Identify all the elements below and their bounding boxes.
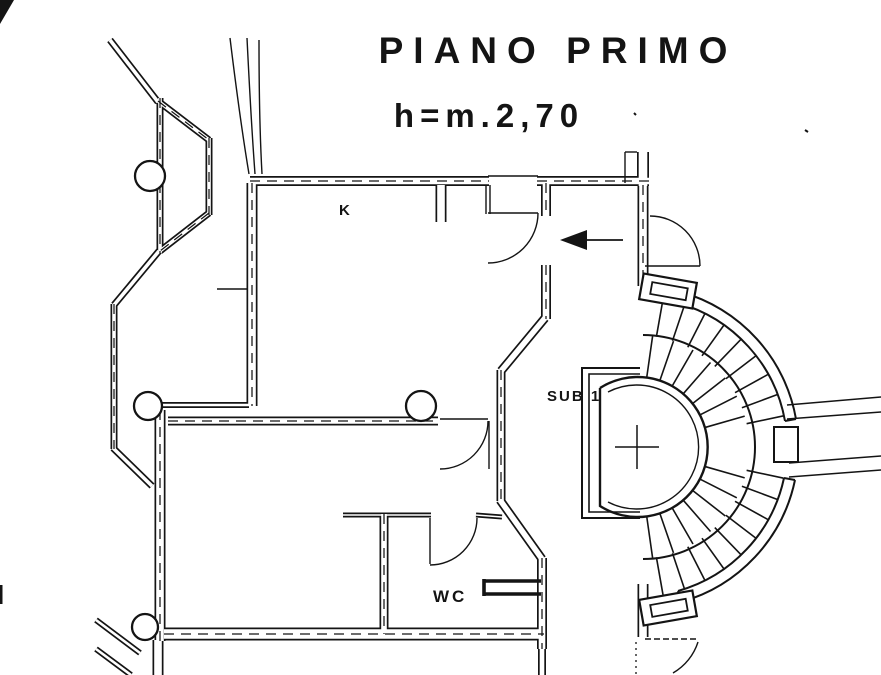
- door-or-detail-line: [430, 518, 477, 565]
- stair-step-line: [683, 500, 711, 532]
- column-circle: [406, 391, 436, 421]
- stair-step-line: [704, 466, 744, 478]
- stair-step-line: [660, 513, 674, 553]
- wall-segment: [114, 251, 159, 305]
- door-or-detail-line: [673, 642, 698, 673]
- stair-step-line: [742, 486, 778, 499]
- walls: [96, 40, 649, 675]
- wall-segment: [500, 500, 542, 559]
- stair-step-line: [647, 516, 653, 558]
- exit-wall-lines: [787, 397, 881, 477]
- stair-step-line: [673, 553, 685, 589]
- stair-step-line: [735, 501, 768, 519]
- room-label-wc: WC: [433, 587, 467, 606]
- floor-plan-drawing: PIANO PRIMO h=m.2,70 K SUB 1 WC: [0, 0, 881, 675]
- stair-step-line: [735, 374, 768, 392]
- stair-step-line: [699, 479, 736, 498]
- stair-step-line: [715, 528, 741, 555]
- entrance-arrow: [560, 230, 623, 250]
- door-or-detail-line: [230, 38, 249, 174]
- stair-step-line: [673, 305, 685, 341]
- stair-step-line: [692, 378, 725, 404]
- spiral-staircase: [582, 274, 798, 626]
- door-or-detail-line: [247, 38, 255, 174]
- stair-step-line: [656, 557, 663, 594]
- stair-step-line: [660, 341, 674, 381]
- stair-wall-notch: [639, 274, 697, 309]
- stair-step-line: [715, 339, 741, 366]
- stair-step-line: [742, 395, 778, 408]
- stair-step-line: [672, 508, 693, 544]
- stair-step-line: [688, 313, 705, 347]
- column-circle: [132, 614, 158, 640]
- scan-speck: [634, 113, 808, 132]
- plan-height-note: h=m.2,70: [394, 97, 584, 134]
- wall-segment: [110, 40, 158, 102]
- stair-step-line: [683, 363, 711, 395]
- wc-niche: [484, 579, 541, 596]
- wall-segment: [501, 318, 545, 371]
- wall-segment: [96, 649, 131, 675]
- room-label-kitchen: K: [339, 202, 351, 219]
- stair-step-line: [704, 416, 744, 428]
- scan-mark: [0, 0, 14, 24]
- stair-step-line: [692, 490, 725, 516]
- stair-step-line: [726, 515, 756, 538]
- floor-plan-sheet: PIANO PRIMO h=m.2,70 K SUB 1 WC: [0, 0, 881, 675]
- stair-step-line: [699, 396, 736, 415]
- door-or-detail-line: [650, 216, 700, 266]
- column-circle: [135, 161, 165, 191]
- stair-step-line: [688, 547, 705, 581]
- room-label-subunit: SUB 1: [547, 388, 601, 405]
- arrow-head-icon: [560, 230, 587, 250]
- door-or-detail-line: [440, 421, 488, 469]
- plan-title: PIANO PRIMO: [379, 30, 738, 71]
- door-or-detail-line: [488, 213, 538, 263]
- column-circles: [132, 161, 436, 640]
- stair-step-line: [702, 325, 724, 356]
- stair-step-line: [702, 538, 724, 569]
- stair-pier: [774, 427, 798, 462]
- wall-segment: [113, 448, 152, 486]
- stair-step-line: [672, 350, 693, 386]
- stair-step-line: [656, 299, 663, 336]
- stair-step-line: [647, 336, 653, 378]
- stair-step-line: [726, 356, 756, 379]
- column-circle: [134, 392, 162, 420]
- door-or-detail-line: [259, 40, 262, 174]
